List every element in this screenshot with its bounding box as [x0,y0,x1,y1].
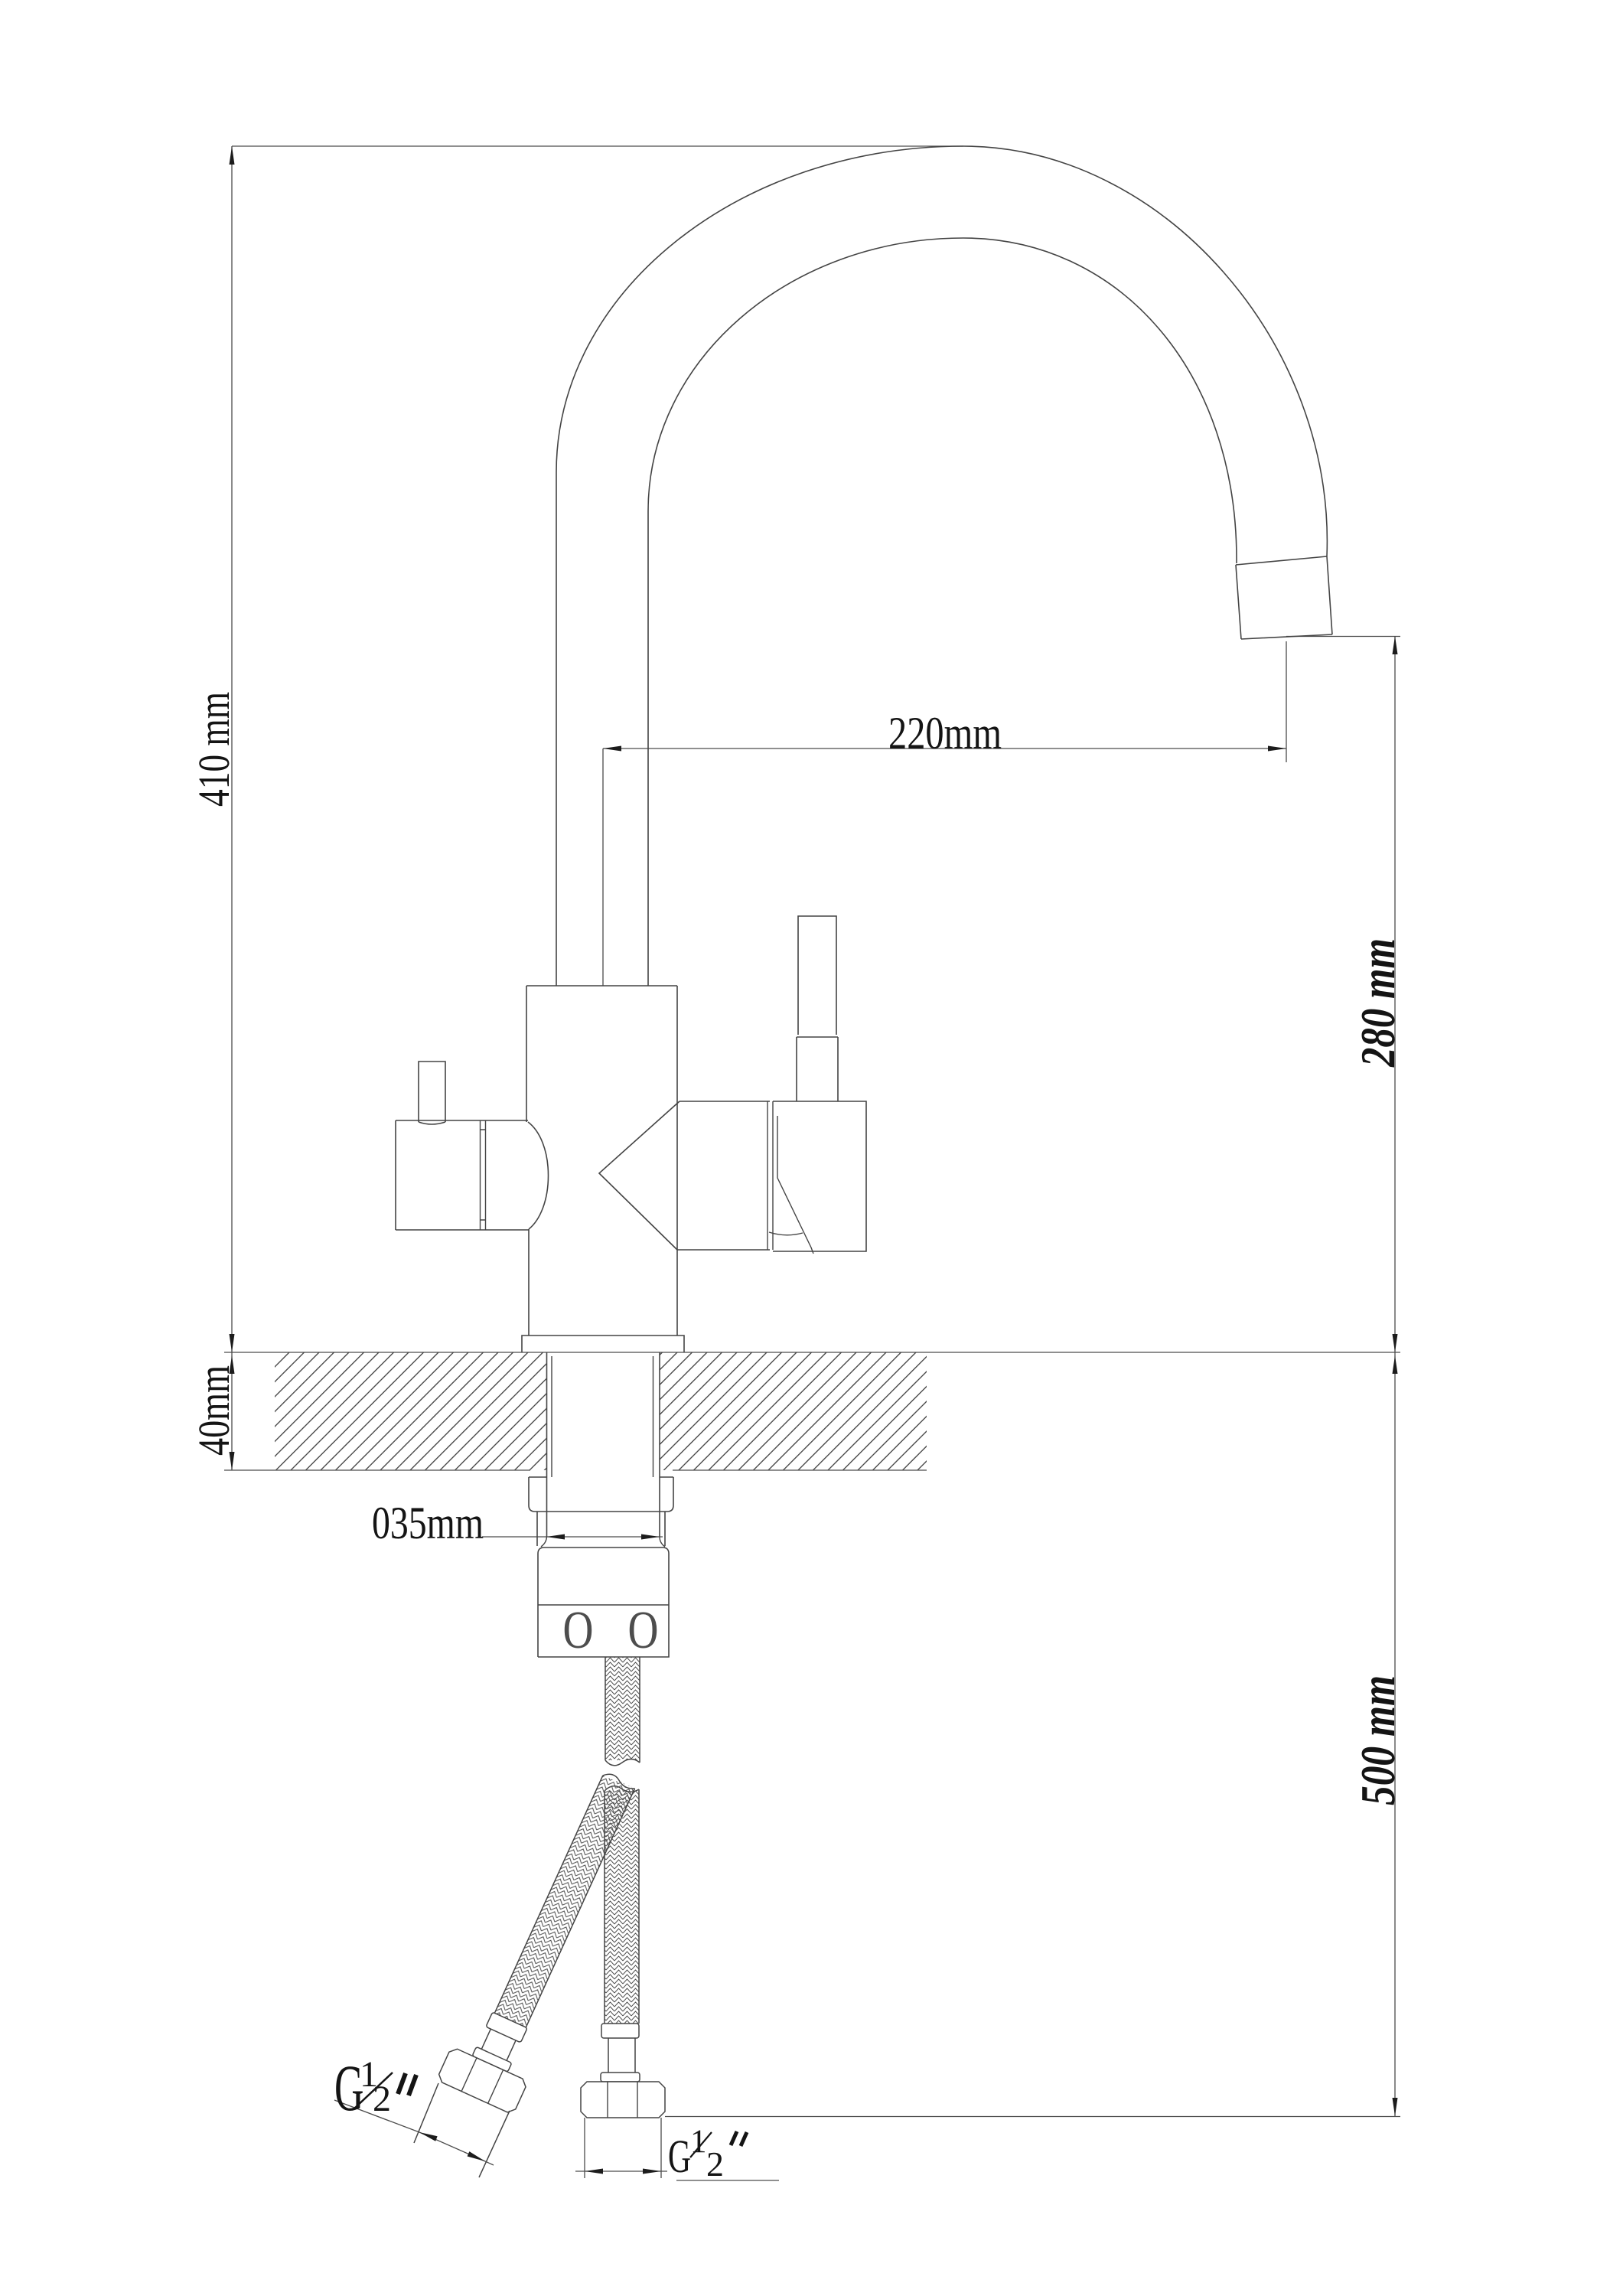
svg-text:2: 2 [373,2079,391,2119]
svg-text:G: G [668,2131,691,2183]
svg-text:035mm: 035mm [372,1498,484,1548]
svg-text:O: O [563,1601,594,1660]
svg-text:280 mm: 280 mm [1351,938,1405,1068]
svg-text:500 mm: 500 mm [1351,1675,1405,1805]
svg-text:O: O [628,1601,659,1660]
svg-text:2: 2 [706,2144,724,2183]
svg-text:40mm: 40mm [189,1365,239,1456]
svg-text:220mm: 220mm [888,708,1002,758]
svg-text:410 mm: 410 mm [189,692,239,807]
